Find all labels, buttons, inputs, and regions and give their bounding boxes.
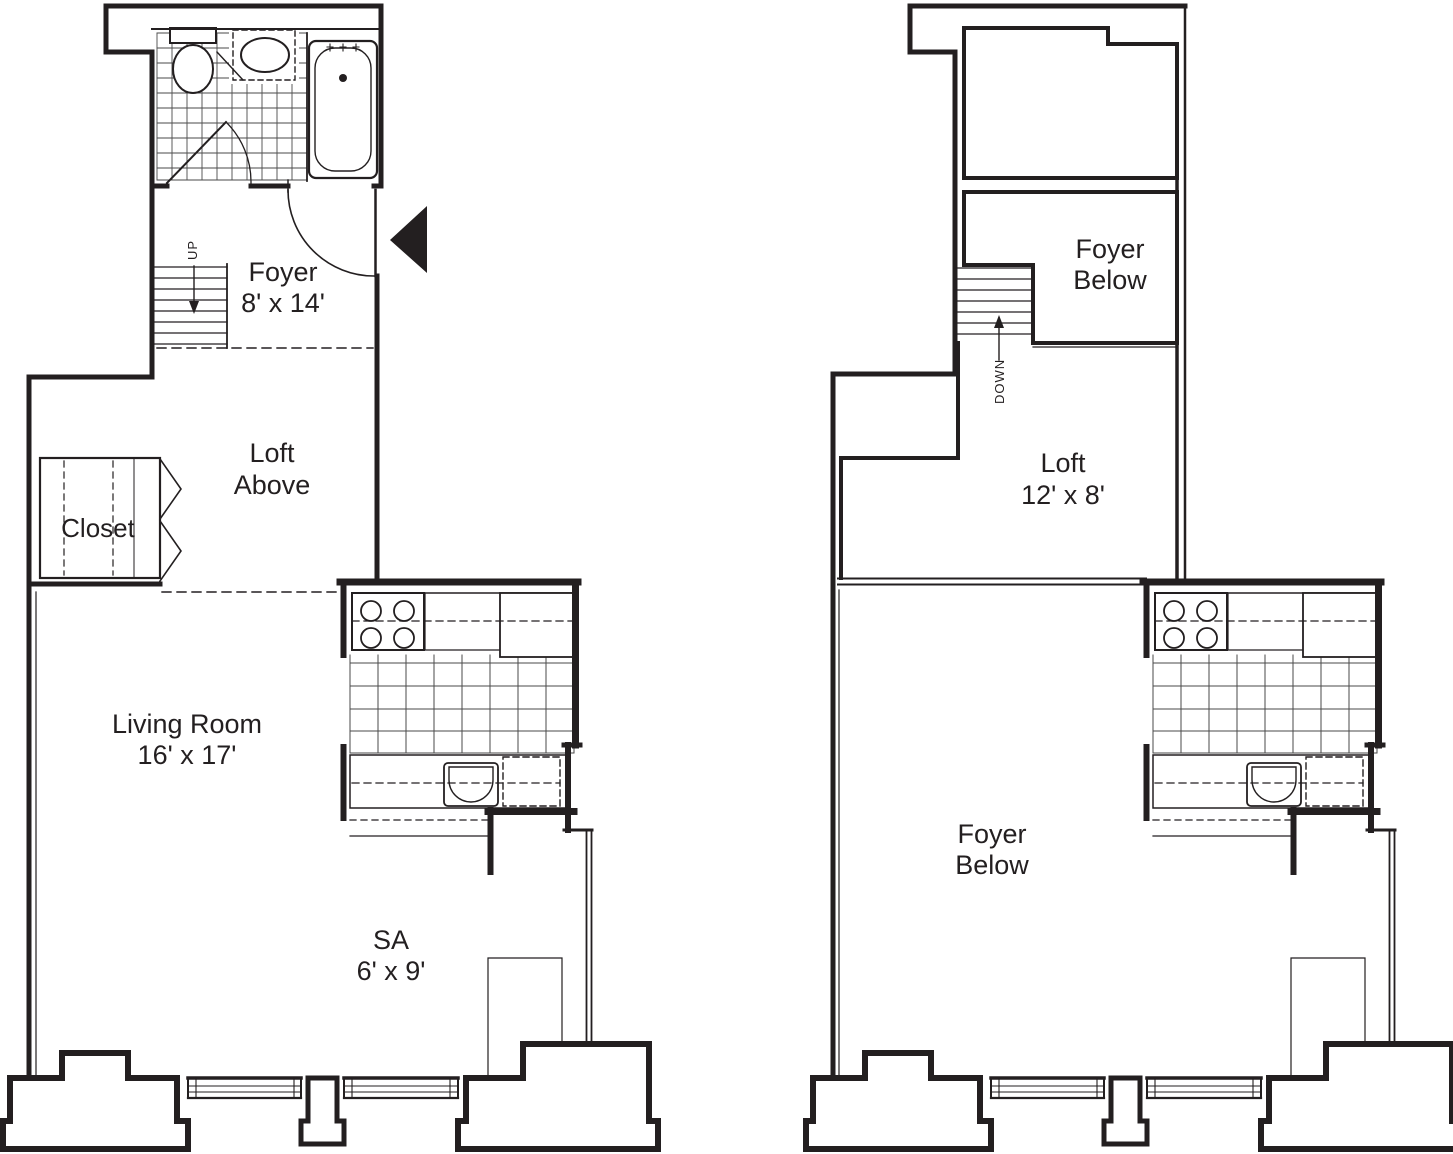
foyer-below-upper-label-1: Foyer xyxy=(1075,234,1144,264)
floorplan-page: Foyer 8' x 14' Loft Above Closet Living … xyxy=(0,0,1453,1154)
stairs-down-label: DOWN xyxy=(992,359,1007,404)
bathtub xyxy=(309,41,377,178)
toilet-tank xyxy=(170,28,216,43)
sa-label: SA xyxy=(373,925,409,955)
bathroom xyxy=(167,26,377,183)
closet-label: Closet xyxy=(61,513,135,543)
labels: Foyer 8' x 14' Loft Above Closet Living … xyxy=(61,234,1147,986)
stairs-up xyxy=(155,264,227,348)
foyer-below-upper-label-2: Below xyxy=(1073,265,1147,295)
loft-above-label-1: Loft xyxy=(249,438,295,468)
down-arrow-head xyxy=(994,315,1004,328)
closet-bifold-doors xyxy=(160,459,181,581)
loft-slab-edge xyxy=(838,579,1146,585)
loft-dims: 12' x 8' xyxy=(1021,480,1105,510)
living-room-label: Living Room xyxy=(112,709,262,739)
foyer-below-lower-label-2: Below xyxy=(955,850,1029,880)
foyer-dims: 8' x 14' xyxy=(241,288,325,318)
up-arrow-head xyxy=(189,301,199,314)
bathroom-sink xyxy=(241,38,289,72)
exterior-walls xyxy=(833,6,1185,1078)
foyer-below-lower-label-1: Foyer xyxy=(957,819,1026,849)
living-room-dims: 16' x 17' xyxy=(138,740,237,770)
sa-dims: 6' x 9' xyxy=(357,956,426,986)
foyer-label: Foyer xyxy=(248,257,317,287)
main-floor-plan xyxy=(3,6,658,1149)
floorplan-drawing: Foyer 8' x 14' Loft Above Closet Living … xyxy=(0,0,1453,1154)
stairs-up-label: UP xyxy=(185,240,200,260)
upper-floor-plan xyxy=(806,6,1453,1149)
entry-arrow-icon xyxy=(390,206,427,273)
loft-label: Loft xyxy=(1040,448,1086,478)
open-below-room xyxy=(964,28,1177,178)
stairs-down xyxy=(956,268,1031,360)
tub-drain xyxy=(339,74,347,82)
toilet xyxy=(173,45,213,93)
loft-above-label-2: Above xyxy=(234,470,311,500)
